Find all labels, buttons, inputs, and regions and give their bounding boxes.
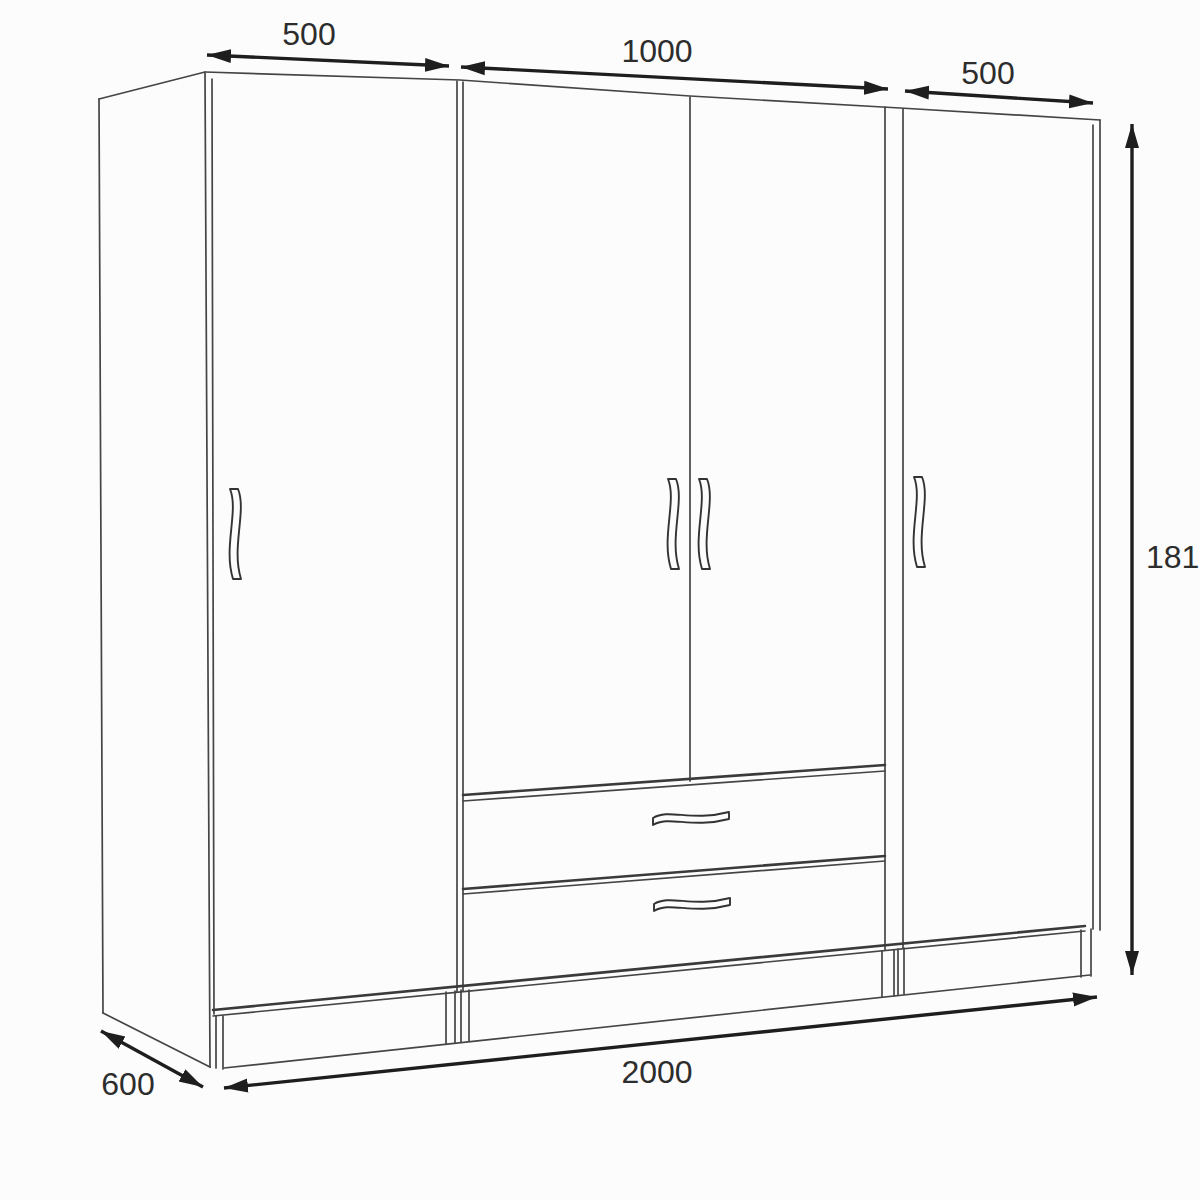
front-frame (205, 72, 1100, 1067)
dim-top-right-width: 500 (905, 55, 1093, 103)
right-door-handle (914, 477, 925, 567)
side-panel (99, 72, 210, 1067)
drawer-top-gap-line (463, 771, 885, 801)
door-partitions (457, 81, 903, 992)
side-panel-top-edge (99, 72, 205, 99)
middle-left-door-handle (668, 479, 679, 569)
dim-label-top-middle-width: 1000 (621, 33, 692, 69)
dim-label-top-left-width: 500 (282, 16, 335, 52)
leg-front-right (1081, 929, 1091, 977)
dim-label-height: 1810 (1146, 539, 1200, 575)
side-panel-back-edge (99, 99, 103, 1013)
dim-height: 1810 (1132, 124, 1200, 975)
wardrobe-dimension-diagram: 500 1000 500 1810 2000 600 (0, 0, 1200, 1200)
drawer-divider-edge (463, 856, 885, 889)
dim-top-left-width: 500 (207, 16, 449, 66)
dim-depth: 600 (101, 1031, 203, 1102)
wardrobe-body (99, 72, 1100, 1069)
plinth-top-gap-line (213, 931, 1085, 1016)
leg-front-left (216, 1016, 223, 1069)
leg-left-partition (446, 990, 469, 1044)
left-door-handle (230, 489, 241, 579)
upper-drawer-handle (653, 812, 729, 825)
leg-right-partition (882, 948, 904, 997)
dimension-annotations: 500 1000 500 1810 2000 600 (101, 16, 1200, 1102)
middle-right-door-handle (699, 479, 710, 569)
plinth-top-edge (213, 926, 1085, 1010)
drawer-lines (463, 765, 885, 894)
dim-label-total-width: 2000 (621, 1054, 692, 1090)
drawer-divider-gap-line (463, 861, 885, 894)
dim-total-width: 2000 (224, 997, 1097, 1090)
dim-line-top-middle (461, 67, 888, 89)
front-left-edge-inner (212, 79, 214, 1014)
middle-doors-bottom-edge (463, 765, 885, 795)
dim-line-top-right (905, 91, 1093, 103)
dim-line-top-left (207, 55, 449, 66)
plinth-and-legs (213, 926, 1091, 1069)
front-left-edge-outer (205, 73, 210, 1067)
dim-label-top-right-width: 500 (961, 55, 1014, 91)
lower-drawer-handle (654, 898, 730, 911)
dim-label-depth: 600 (101, 1066, 154, 1102)
dim-top-middle-width: 1000 (461, 33, 888, 89)
diagram-canvas: 500 1000 500 1810 2000 600 (0, 0, 1200, 1200)
